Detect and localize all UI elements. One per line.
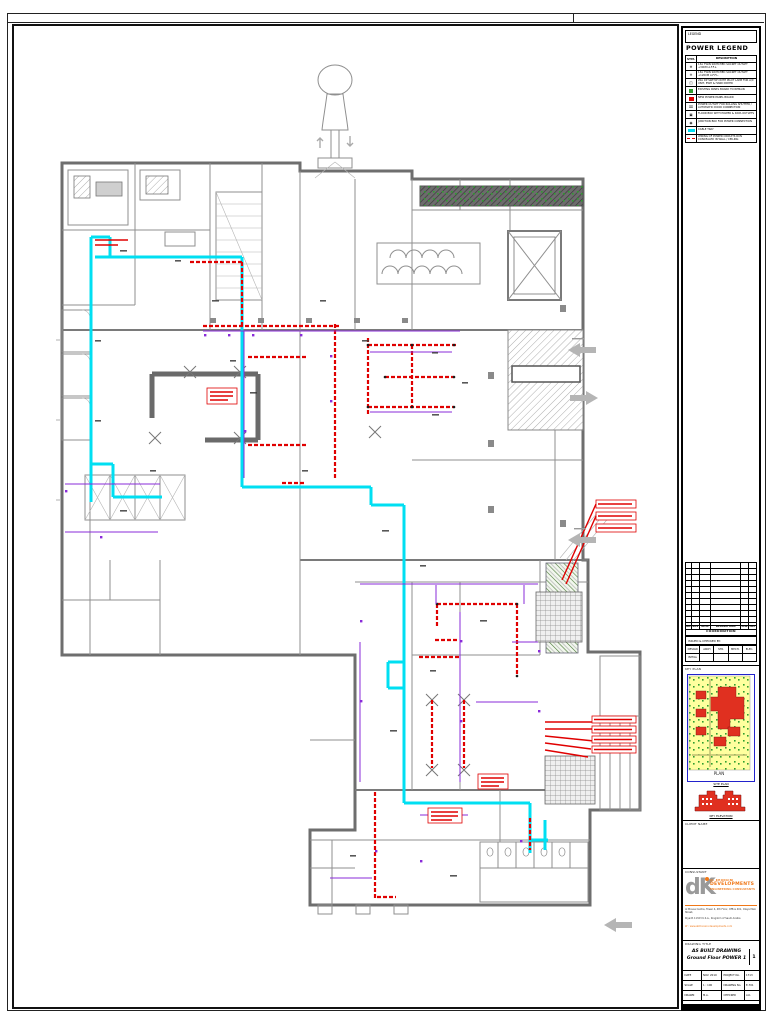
coordination-bar: COORDINATION xyxy=(685,625,757,636)
service-core xyxy=(545,756,595,804)
issued-checked-bar: ISSUED & CHECKED BY: xyxy=(685,636,757,645)
consultant-logo: dK AL KHONAINI DEVELOPMENTS ENGINEERING … xyxy=(685,876,758,904)
legend-header-row: SYM. DESCRIPTION xyxy=(686,56,756,62)
legend-row: ⊕ 13A TWIN SWITCHED SOCKET OUTLET +30CM … xyxy=(686,62,756,70)
entrance-arrow-left-3 xyxy=(604,918,632,932)
socket-outlet-icon: ⊕ xyxy=(686,63,697,70)
legend-row: ⊖ 13A TWIN SWITCHED SOCKET OUTLET +120CM… xyxy=(686,70,756,78)
shutter-outlet-icon: ⌧ xyxy=(686,103,697,110)
legend-title: POWER LEGEND xyxy=(686,44,759,52)
dp-switch-icon: ◫ xyxy=(686,79,697,86)
up-arrow-icon xyxy=(317,138,323,148)
interior-walls xyxy=(62,163,590,914)
dimension-ticks xyxy=(56,340,60,500)
legend-row: CABLE TRAY xyxy=(686,126,756,134)
legend-row: WIRING OF POWER CIRCUITS RUN CONCEALED I… xyxy=(686,134,756,142)
socket-outlet-high-icon: ⊖ xyxy=(686,71,697,78)
legend-row: ▣ FLOOR BOX WITH POWER & DATA OUTLETS xyxy=(686,110,756,118)
legend-row: ◉ JUNCTION BOX FOR POWER CONNECTION xyxy=(686,118,756,126)
key-plan-section: KEY PLAN PLAN SITE PLAN xyxy=(683,665,759,821)
canopy-tower xyxy=(315,65,355,178)
cable-tray-icon xyxy=(688,129,695,132)
consultant-divider xyxy=(685,905,757,906)
drawing-title-label: DRAWING TITLE xyxy=(683,941,759,946)
consultant-address-2: Riyadh 11323 K.S.A., Kingdom of Saudi Ar… xyxy=(683,917,759,920)
client-section: CLIENT NAME xyxy=(683,820,759,869)
legend-row: ◫ 20A DP SWITCH WITH PILOT LAMP FOR A/C … xyxy=(686,78,756,86)
floor-plan xyxy=(0,0,768,1024)
key-elevation xyxy=(693,787,747,813)
site-plan-caption: SITE PLAN xyxy=(683,782,759,786)
coordination-grid: DESIGN ARCH STR. MECH. ELEC. INITIAL xyxy=(685,645,757,662)
legend-row: EXISTING PANEL BOARD TO REMAIN xyxy=(686,86,756,94)
junction-box-icon: ◉ xyxy=(686,119,697,126)
logo-dot-icon xyxy=(705,877,709,881)
site-plan-inner-caption: PLAN xyxy=(714,771,724,776)
floor-box-icon: ▣ xyxy=(686,111,697,118)
key-plan-frame: PLAN xyxy=(687,674,755,782)
annotation-boxes xyxy=(207,388,508,823)
consultant-address-1: Al Mousa Centre, Tower 4, 4th Floor, Off… xyxy=(683,908,759,914)
ceiling-fan-marks xyxy=(149,366,470,776)
site-plan-map: PLAN xyxy=(688,675,751,778)
sheet-info-table: DATE NOV. 2019 PROJECT No. 1713 SCALE 1 … xyxy=(683,970,759,1001)
consultant-section: CONSULTANT dK AL KHONAINI DEVELOPMENTS E… xyxy=(683,868,759,941)
key-elevation-caption: KEY ELEVATION xyxy=(683,814,759,818)
client-label: CLIENT NAME xyxy=(683,821,759,826)
drawing-title-line1: AS BUILT DRAWING xyxy=(685,949,748,954)
escalator-block xyxy=(600,656,640,716)
consultant-name-sub: ENGINEERING CONSULTANTS xyxy=(710,887,758,891)
title-block-footer-bar xyxy=(683,1004,759,1009)
outlet-dots xyxy=(65,334,540,862)
power-legend-table: SYM. DESCRIPTION ⊕ 13A TWIN SWITCHED SOC… xyxy=(685,55,757,143)
planter-box xyxy=(377,243,480,284)
consultant-label: CONSULTANT xyxy=(683,869,759,874)
existing-panel-icon xyxy=(689,89,693,93)
legend-label-box: LEGEND xyxy=(685,30,757,43)
title-block: LEGEND POWER LEGEND SYM. DESCRIPTION ⊕ 1… xyxy=(681,26,761,1011)
stair-grid xyxy=(536,592,582,642)
legend-row: NEW POWER PANEL BOARD xyxy=(686,94,756,102)
revision-table: NO REV DATE DESCRIPTION CHK APP xyxy=(685,562,757,630)
planting-band-greenery xyxy=(420,186,583,206)
new-panel-icon xyxy=(689,97,694,101)
legend-row: ⌧ POWER OUTLET FOR ROLLING SHUTTER / AUT… xyxy=(686,102,756,110)
consultant-website: W : www.alkhonaini-developments.com xyxy=(683,925,759,928)
drawing-title-line2: Ground Floor POWER 1 xyxy=(685,956,748,961)
drawing-title-section: DRAWING TITLE AS BUILT DRAWING Ground Fl… xyxy=(683,940,759,971)
power-wiring-icon xyxy=(687,138,695,139)
key-plan-label: KEY PLAN xyxy=(683,666,759,671)
legend-box-label: LEGEND xyxy=(688,32,701,36)
sheet-tag: 1 xyxy=(749,949,758,965)
down-arrow-icon xyxy=(347,136,353,146)
